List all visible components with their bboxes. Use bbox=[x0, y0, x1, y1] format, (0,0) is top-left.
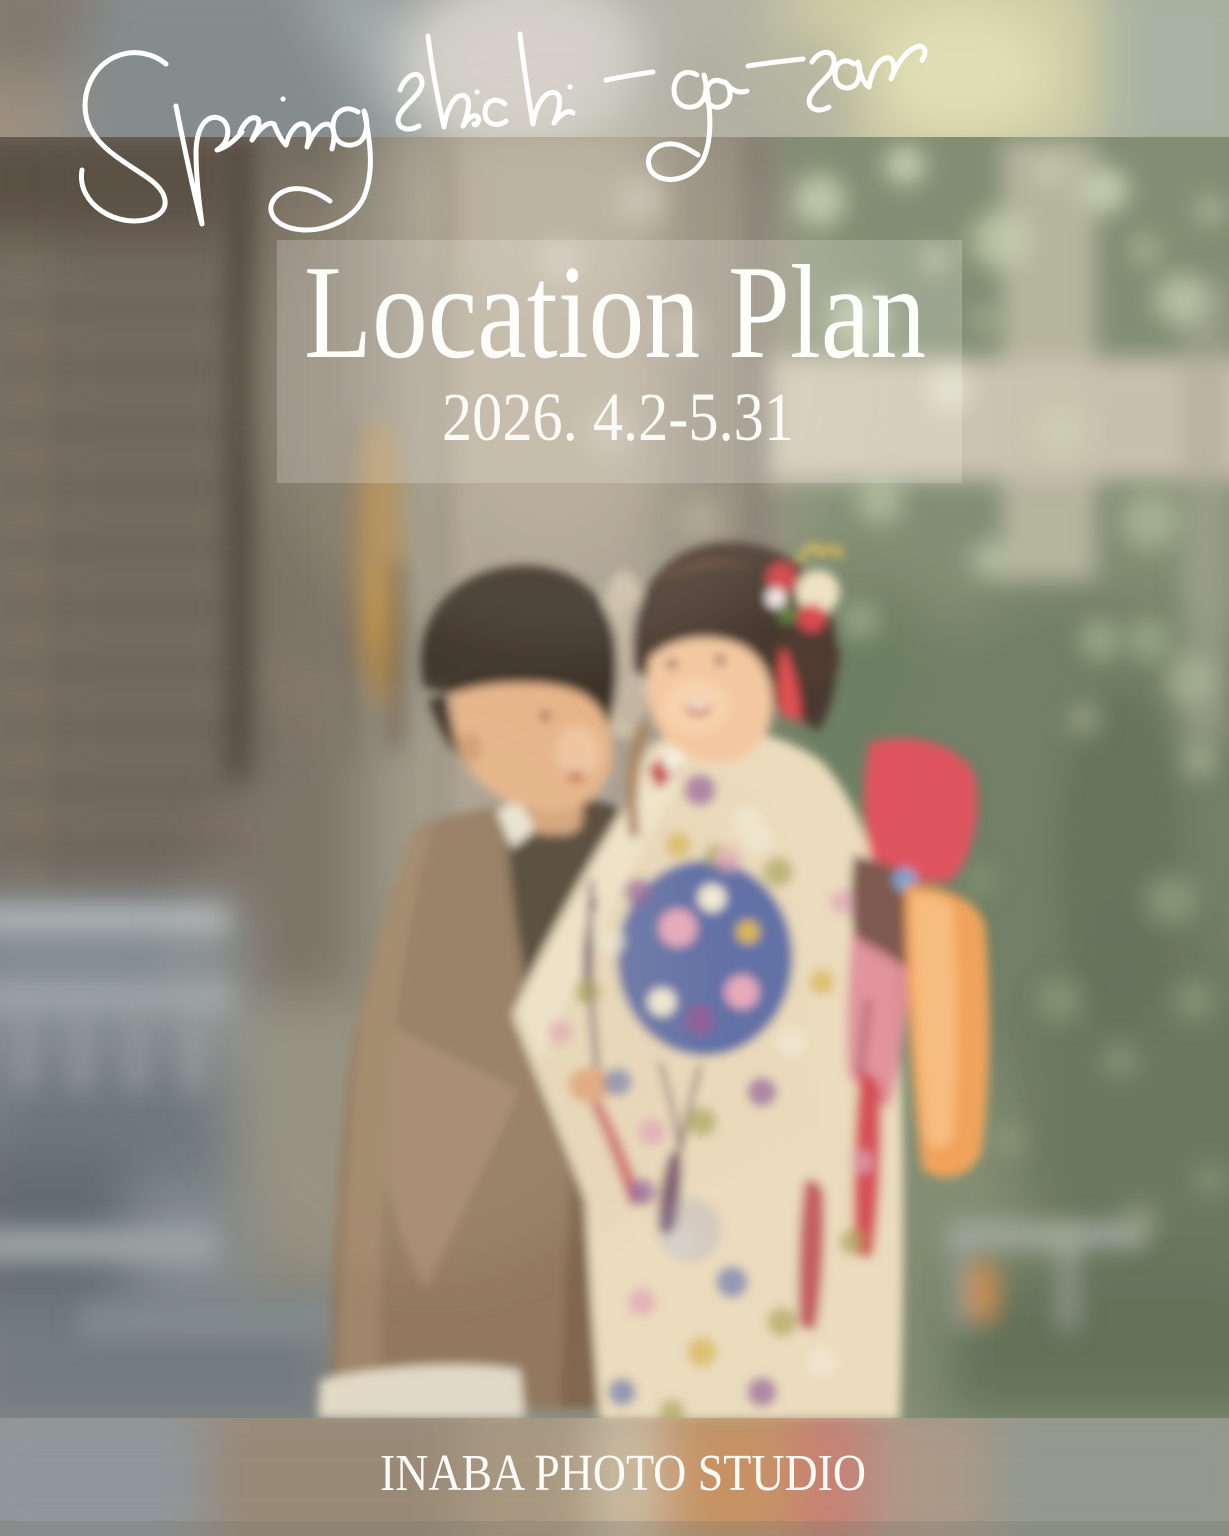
svg-text:Location Plan: Location Plan bbox=[304, 238, 926, 386]
svg-text:2026. 4.2-5.31: 2026. 4.2-5.31 bbox=[442, 379, 794, 455]
svg-text:INABA PHOTO STUDIO: INABA PHOTO STUDIO bbox=[380, 1445, 866, 1502]
